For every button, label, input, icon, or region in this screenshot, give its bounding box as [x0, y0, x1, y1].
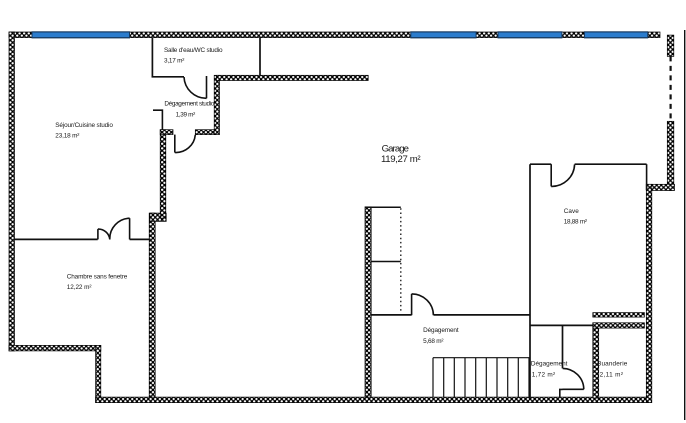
svg-text:3,17 m²: 3,17 m²: [164, 58, 184, 65]
svg-text:Salle d'eau/WC studio: Salle d'eau/WC studio: [164, 47, 223, 54]
svg-text:Dégagement: Dégagement: [531, 361, 568, 368]
svg-text:Chambre sans fenetre: Chambre sans fenetre: [67, 274, 128, 281]
svg-text:1,39 m²: 1,39 m²: [176, 111, 196, 118]
svg-text:5,68 m²: 5,68 m²: [423, 338, 443, 345]
svg-text:2,11 m²: 2,11 m²: [600, 371, 623, 378]
svg-text:Cave: Cave: [564, 208, 580, 215]
svg-text:18,88 m²: 18,88 m²: [564, 218, 587, 225]
svg-text:Dégagement studio: Dégagement studio: [164, 100, 214, 107]
svg-text:12,22 m²: 12,22 m²: [67, 284, 92, 291]
svg-text:Dégagement: Dégagement: [423, 327, 459, 334]
svg-text:Buanderie: Buanderie: [597, 361, 628, 368]
svg-text:119,27 m²: 119,27 m²: [381, 154, 421, 165]
svg-text:Garage: Garage: [382, 143, 409, 154]
svg-text:Séjour/Cuisine studio: Séjour/Cuisine studio: [55, 122, 113, 129]
svg-text:1,72 m²: 1,72 m²: [532, 371, 556, 378]
svg-text:23,18 m²: 23,18 m²: [55, 133, 79, 140]
